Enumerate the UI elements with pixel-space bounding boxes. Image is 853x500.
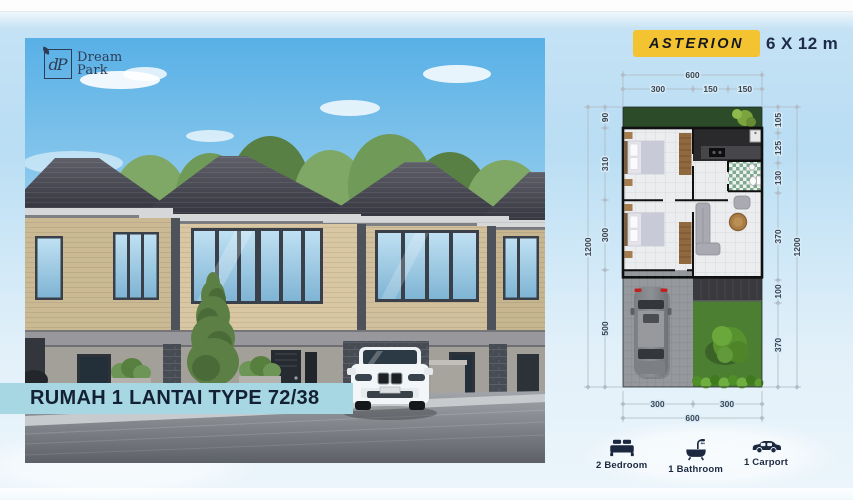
dim-right-total: 1200 <box>792 237 802 256</box>
dim-left-seg: 500 <box>600 321 610 335</box>
dim-top-seg: 300 <box>651 84 665 94</box>
car-icon <box>751 438 781 454</box>
brand-name: Dream Park <box>77 51 122 78</box>
feature-label: 2 Bedroom <box>596 460 647 471</box>
dim-left-seg: 310 <box>600 157 610 171</box>
dim-left-seg: 300 <box>600 228 610 242</box>
brand-name-line2: Park <box>77 64 122 77</box>
dim-bottom-seg: 300 <box>720 399 734 409</box>
garden-bottom <box>692 301 764 389</box>
dim-left-total: 1200 <box>583 237 593 256</box>
product-name: ASTERION <box>649 36 744 52</box>
dim-left-seg: 90 <box>600 113 610 123</box>
dim-top-seg: 150 <box>738 84 752 94</box>
dim-right-seg: 130 <box>773 171 783 185</box>
floor-band <box>25 330 545 347</box>
caption-text: RUMAH 1 LANTAI TYPE 72/38 <box>30 387 319 410</box>
feature-label: 1 Carport <box>744 457 788 468</box>
dim-bottom-seg: 300 <box>650 399 664 409</box>
brand-name-line1: Dream <box>77 51 122 64</box>
feature-label: 1 Bathroom <box>668 464 723 475</box>
feature-bedroom: 2 Bedroom <box>596 438 647 475</box>
dim-top-total: 600 <box>685 70 699 80</box>
logo-monogram-box: dP <box>44 49 72 79</box>
terrace <box>693 277 762 300</box>
product-badge: ASTERION <box>633 30 760 57</box>
dim-right-seg: 105 <box>773 113 783 127</box>
dim-right-seg: 100 <box>773 284 783 298</box>
feature-carport: 1 Carport <box>744 438 788 475</box>
bathtub-icon <box>685 438 707 461</box>
bed-icon <box>607 438 637 457</box>
feature-list: 2 Bedroom 1 Bathroom 1 Carport <box>596 438 788 475</box>
dim-top-seg: 150 <box>703 84 717 94</box>
logo-monogram: dP <box>48 55 65 74</box>
dim-right-seg: 125 <box>773 141 783 155</box>
brand-logo: dP Dream Park <box>44 49 122 79</box>
top-margin-strip <box>0 0 853 12</box>
feature-bathroom: 1 Bathroom <box>668 438 723 475</box>
carport <box>623 270 693 387</box>
dim-right-seg: 370 <box>773 229 783 243</box>
flyer-page: dP Dream Park ASTERION 6 X 12 m <box>0 0 853 488</box>
floorplan-plot <box>623 107 764 389</box>
dim-bottom-total: 600 <box>685 413 699 423</box>
floorplan-drawing: 600 300 150 150 90 310 300 500 1200 105 … <box>575 62 820 432</box>
dim-right-seg: 370 <box>773 338 783 352</box>
lot-size-label: 6 X 12 m <box>766 30 838 57</box>
floorplan-panel: 600 300 150 150 90 310 300 500 1200 105 … <box>575 62 820 432</box>
caption-banner: RUMAH 1 LANTAI TYPE 72/38 <box>0 383 353 414</box>
